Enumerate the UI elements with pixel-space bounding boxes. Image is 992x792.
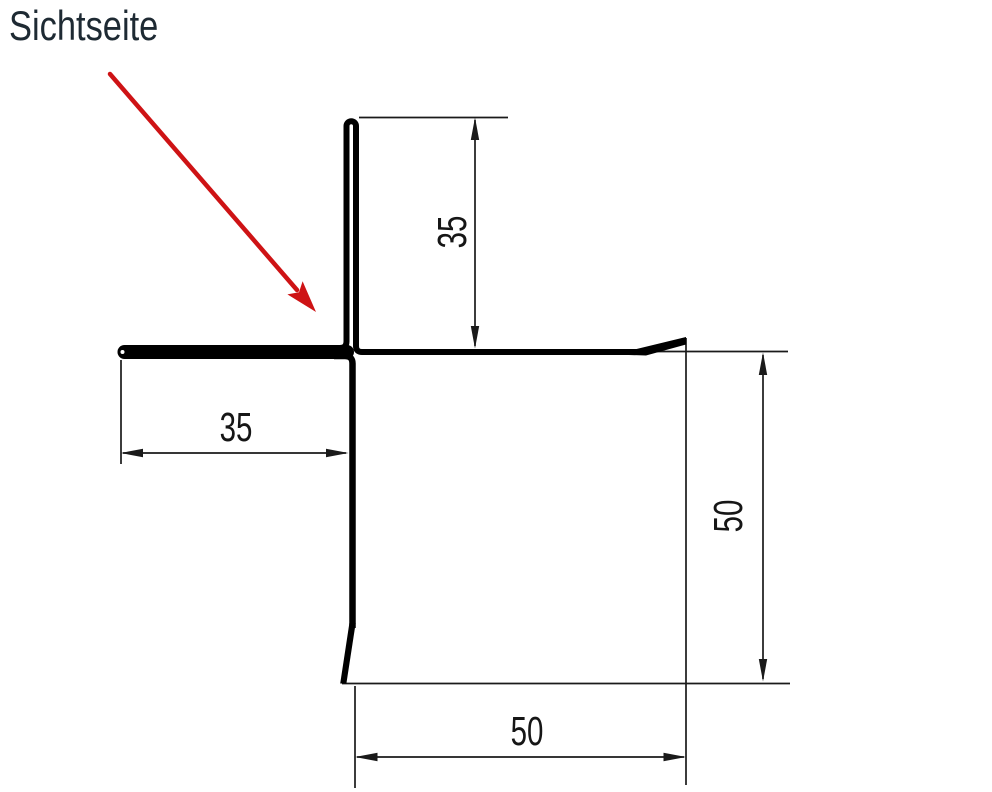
dimension-right-height: 50 [640, 338, 788, 785]
profile-right-kink [614, 337, 686, 356]
profile-lower-leg-path [334, 356, 353, 628]
profile-technical-drawing: 35 35 50 50 [0, 0, 992, 792]
dim-top-leg-arrow-up-icon [471, 118, 479, 141]
profile-left-hem-dot [121, 350, 125, 354]
profile-bottom-kink [340, 623, 356, 684]
dimension-left-leg: 35 [121, 360, 349, 464]
dim-bottom-width-arrow-right-icon [664, 753, 687, 761]
profile-cross-section [121, 121, 687, 683]
dim-left-leg-arrow-left-icon [121, 449, 144, 457]
dim-left-leg-arrow-right-icon [326, 449, 349, 457]
dim-right-height-arrow-up-icon [759, 353, 767, 376]
dim-top-leg-value: 35 [429, 216, 475, 249]
pointer-arrow-shaft [110, 74, 297, 290]
dim-right-height-value: 50 [705, 500, 751, 533]
dim-top-leg-arrow-down-icon [471, 326, 479, 349]
dimension-bottom-width: 50 [342, 684, 790, 789]
dim-left-leg-value: 35 [220, 404, 253, 450]
dim-bottom-width-arrow-left-icon [355, 753, 378, 761]
sichtseite-pointer-arrow [110, 74, 316, 312]
dim-right-height-arrow-down-icon [759, 659, 767, 682]
profile-drawing-canvas: Sichtseite 35 35 50 [0, 0, 992, 792]
dim-bottom-width-value: 50 [511, 708, 544, 754]
dimension-top-leg: 35 [359, 118, 508, 349]
